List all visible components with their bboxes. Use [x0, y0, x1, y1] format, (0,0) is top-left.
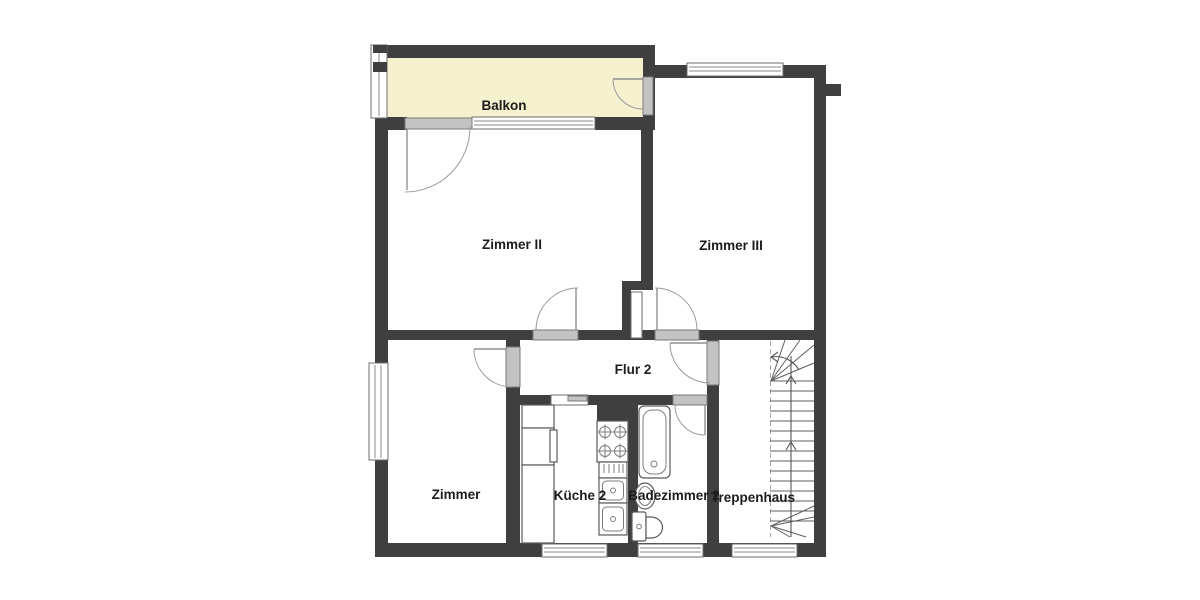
window-badezimmer [638, 544, 703, 557]
door-zimmer-ii [533, 330, 578, 340]
toilet-icon [632, 512, 663, 541]
room-label-zimmer: Zimmer [432, 487, 482, 502]
window-balcony-door-side [472, 117, 595, 129]
room-label-zimmer-iii: Zimmer III [699, 238, 763, 253]
window-zimmer-left [369, 363, 388, 460]
room-label-badezimmer-2: Badezimmer 2 [628, 488, 720, 503]
door-arc [405, 127, 470, 192]
door-badezimmer [673, 395, 707, 405]
floorplan-canvas: Balkon Zimmer II Zimmer III Flur 2 Zimme… [0, 0, 1200, 600]
wall-segment [826, 84, 841, 96]
shaft-opening [631, 292, 642, 338]
sink-icon [599, 478, 627, 535]
door-arc [675, 405, 705, 435]
door-balkon [643, 77, 653, 115]
wall-segment [375, 45, 655, 58]
stair-treads [770, 340, 814, 537]
room-label-balkon: Balkon [481, 98, 526, 113]
wall-segment [622, 281, 653, 290]
room-label-treppenhaus: Treppenhaus [711, 490, 795, 505]
window-treppenhaus [732, 544, 797, 557]
wall-segment [375, 330, 826, 340]
appliance-handle [550, 430, 557, 462]
wall-segment [814, 65, 826, 557]
door-treppenhaus [707, 341, 719, 385]
railing-post [373, 45, 387, 53]
kitchen-counter [522, 428, 554, 465]
door-balkon-zimmer-ii [405, 118, 472, 129]
bathtub-icon [639, 406, 670, 478]
door-arc [536, 288, 578, 330]
door-arc [670, 343, 710, 383]
sliding-door-panel [568, 396, 587, 401]
window-zimmer-iii [687, 63, 783, 76]
room-label-kueche-2: Küche 2 [554, 488, 607, 503]
door-arc [655, 288, 697, 330]
floorplan-svg: Balkon Zimmer II Zimmer III Flur 2 Zimme… [0, 0, 1200, 600]
wall-segment [597, 405, 628, 421]
door-swings [405, 79, 710, 435]
railing-post [373, 62, 387, 72]
wall-segment [641, 125, 653, 290]
stairs [770, 340, 814, 537]
kitchen-fixtures [522, 405, 628, 543]
door-zimmer-iii [655, 330, 699, 340]
drainer-icon [599, 462, 627, 478]
room-label-flur-2: Flur 2 [615, 362, 652, 377]
room-label-zimmer-ii: Zimmer II [482, 237, 542, 252]
stove-icon [597, 421, 628, 462]
kitchen-counter [522, 465, 554, 543]
kitchen-counter [522, 405, 554, 428]
door-zimmer [506, 347, 520, 387]
window-kueche [542, 544, 607, 557]
